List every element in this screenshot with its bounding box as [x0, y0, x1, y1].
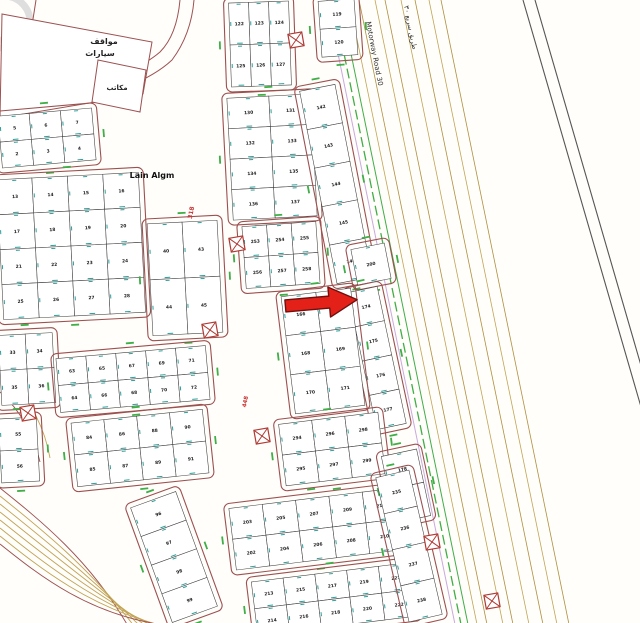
plot-number: 298 [358, 427, 368, 434]
plot-number: 88 [151, 428, 158, 435]
dimension-mark [0, 433, 1, 437]
dimension-mark [184, 248, 185, 252]
utility-box-icon [254, 428, 270, 444]
dimension-mark [0, 230, 1, 234]
dimension-mark [232, 64, 233, 68]
map-label: Lain Algm [130, 171, 175, 180]
dimension-mark [288, 96, 292, 97]
dimension-mark [105, 190, 106, 194]
dimension-mark [278, 44, 282, 45]
plot-number: 216 [299, 613, 309, 620]
dimension-mark [53, 283, 57, 284]
plot-number: 24 [122, 258, 128, 264]
dimension-mark [15, 419, 19, 420]
plot-number: 22 [51, 262, 57, 268]
plot-number: 166 [296, 311, 306, 318]
dimension-mark [37, 263, 38, 267]
dimension-mark [229, 111, 230, 115]
dimension-mark [69, 191, 70, 195]
dimension-mark [239, 85, 245, 86]
dimension-mark [163, 224, 167, 225]
plot-number: 297 [329, 461, 339, 468]
plot-number: 213 [264, 590, 274, 597]
plot-number: 36 [38, 383, 44, 389]
dimension-mark [291, 157, 295, 158]
dimension-mark [10, 336, 14, 337]
plot-number: 33 [9, 350, 15, 356]
plot-number: 7 [75, 120, 79, 126]
dimension-mark [87, 246, 91, 247]
dimension-mark [270, 109, 271, 113]
block-tl-big: 13141516171819202122232425262728 [0, 162, 157, 330]
map-label: سيارات [85, 49, 115, 58]
dimension-mark [246, 98, 250, 99]
plot-number: 136 [249, 201, 258, 207]
plot-number: 169 [336, 346, 346, 353]
plot-number: 256 [253, 269, 263, 276]
plot-number: 135 [289, 168, 298, 174]
dimension-mark [39, 369, 43, 370]
dimension-mark [233, 203, 234, 207]
dimension-mark [27, 349, 28, 353]
plot-number: 5 [13, 125, 17, 131]
plot-number: 15 [83, 190, 89, 196]
plot-number: 87 [122, 463, 129, 470]
dimension-mark [49, 213, 53, 214]
plot-number: 14 [47, 192, 53, 198]
plot-number: 63 [69, 368, 76, 375]
plot-number: 209 [343, 507, 353, 514]
plot-number: 89 [155, 459, 162, 466]
plot-number: 208 [346, 537, 356, 544]
plot-number: 127 [276, 62, 285, 68]
map-label: مواقف [90, 37, 118, 46]
dimension-mark [73, 261, 74, 265]
dimension-mark [2, 386, 3, 390]
dimension-mark [29, 384, 30, 388]
plot-number: 137 [291, 199, 300, 205]
dimension-mark [230, 142, 231, 146]
plot-number: 84 [86, 435, 93, 442]
plot-number: 171 [340, 385, 350, 392]
plot-number: 86 [119, 431, 126, 438]
dimension-mark [48, 178, 52, 179]
plot-number: 35 [11, 385, 17, 391]
utility-box-icon [424, 534, 440, 550]
plot-map-screenshot: 5672341314151617181920212223242526272833… [0, 0, 640, 623]
plot-number: 4 [78, 146, 82, 152]
plot-number: 45 [201, 302, 207, 308]
dimension-mark [279, 83, 285, 84]
dimension-mark [259, 84, 265, 85]
plot-number: 40 [163, 248, 169, 254]
plot-number: 56 [17, 463, 23, 469]
plot-number: 207 [309, 511, 319, 518]
dimension-mark [18, 285, 22, 286]
dimension-mark [272, 63, 273, 67]
plot-number: 72 [191, 385, 198, 392]
plot-number: 66 [101, 392, 108, 399]
dimension-mark [83, 176, 87, 177]
dimension-mark [238, 46, 242, 47]
plot-number: 296 [325, 431, 335, 438]
plot-number: 44 [166, 304, 172, 310]
plot-number: 134 [247, 171, 256, 177]
plot-number: 20 [120, 223, 126, 229]
plot-number: 119 [332, 11, 342, 18]
plot-number: 26 [53, 297, 59, 303]
dimension-mark [272, 140, 273, 144]
dimension-mark [119, 174, 123, 175]
plot-number: 16 [118, 188, 124, 194]
dimension-mark [251, 189, 255, 190]
plot-number: 70 [161, 387, 168, 394]
plot-number: 2 [15, 151, 19, 157]
dimension-mark [16, 250, 20, 251]
dimension-mark [12, 180, 16, 181]
plot-number: 6 [44, 123, 48, 129]
dimension-mark [39, 298, 40, 302]
plot-number: 202 [246, 550, 256, 557]
dimension-mark [106, 225, 107, 229]
dimension-mark [250, 21, 251, 25]
plot-map-canvas: 5672341314151617181920212223242526272833… [0, 0, 640, 623]
dimension-mark [89, 281, 93, 282]
plot-number: 132 [246, 140, 255, 146]
plot-number: 13 [12, 194, 18, 200]
plot-number: 25 [17, 299, 23, 305]
plot-number: 43 [198, 247, 204, 253]
dimension-mark [274, 170, 275, 174]
dimension-mark [232, 172, 233, 176]
plot-number: 23 [86, 260, 92, 266]
street-center-dash [219, 41, 221, 49]
dimension-mark [17, 451, 21, 452]
dimension-mark [275, 201, 276, 205]
plot-number: 257 [277, 268, 287, 275]
dimension-mark [277, 41, 283, 42]
plot-number: 130 [244, 110, 253, 116]
dimension-mark [12, 371, 16, 372]
dimension-mark [85, 211, 89, 212]
dimension-mark [0, 351, 1, 355]
dimension-mark [247, 129, 251, 130]
plot-number: 55 [15, 431, 21, 437]
dimension-mark [75, 296, 76, 300]
dimension-mark [277, 2, 281, 3]
dimension-mark [289, 126, 293, 127]
plot-number: 295 [296, 466, 306, 473]
dimension-mark [198, 222, 202, 223]
dimension-mark [34, 193, 35, 197]
plot-number: 205 [276, 515, 286, 522]
plot-number: 64 [71, 395, 78, 402]
plot-number: 170 [306, 389, 316, 396]
plot-number: 217 [328, 583, 338, 590]
plot-number: 123 [255, 20, 264, 26]
dimension-mark [108, 260, 109, 264]
plot-number: 18 [49, 227, 55, 233]
plot-number: 125 [236, 63, 245, 69]
plot-number: 69 [158, 360, 165, 367]
plot-number: 258 [302, 266, 312, 273]
dimension-mark [4, 300, 5, 304]
plot-number: 120 [334, 39, 344, 46]
plot-number: 255 [300, 235, 310, 242]
plot-number: 206 [313, 541, 323, 548]
plot-number: 65 [99, 366, 106, 373]
plot-number: 91 [188, 456, 195, 463]
dimension-mark [120, 209, 124, 210]
plot-number: 34 [36, 348, 42, 354]
plot-number: 68 [131, 390, 138, 397]
utility-box-icon [229, 236, 245, 252]
plot-number: 126 [256, 62, 265, 68]
plot-number: 204 [280, 546, 290, 553]
dimension-mark [2, 465, 3, 469]
plot-number: 17 [14, 229, 20, 235]
plot-number: 168 [301, 350, 311, 357]
plot-number: 85 [89, 466, 96, 473]
dimension-mark [187, 304, 188, 308]
plot-number: 215 [296, 587, 306, 594]
map-label: مكاتب [106, 84, 127, 92]
plot-number: 122 [235, 21, 244, 27]
plot-number: 254 [275, 237, 285, 244]
plot-number: 253 [251, 239, 261, 246]
utility-box-icon [484, 593, 500, 609]
plot-number: 218 [331, 609, 341, 616]
dimension-mark [293, 187, 297, 188]
dimension-mark [201, 278, 205, 279]
plot-number: 28 [124, 293, 130, 299]
dimension-mark [110, 294, 111, 298]
dimension-mark [166, 280, 170, 281]
dimension-mark [249, 159, 253, 160]
dimension-mark [230, 22, 231, 26]
dimension-mark [237, 4, 241, 5]
plot-number: 131 [286, 108, 295, 114]
dimension-mark [257, 42, 263, 43]
utility-box-icon [20, 405, 36, 421]
plot-number: 3 [46, 148, 50, 154]
dimension-mark [2, 265, 3, 269]
dimension-mark [51, 248, 55, 249]
dimension-mark [36, 228, 37, 232]
dimension-mark [124, 279, 128, 280]
plot-number: 124 [275, 20, 284, 26]
utility-box-icon [288, 32, 304, 48]
dimension-mark [71, 226, 72, 230]
plot-number: 294 [292, 435, 302, 442]
plot-number: 90 [184, 424, 191, 431]
dimension-mark [237, 43, 243, 44]
dimension-mark [37, 334, 41, 335]
plot-number: 299 [362, 457, 372, 464]
dimension-mark [258, 45, 262, 46]
dimension-mark [122, 244, 126, 245]
plot-number: 27 [88, 295, 94, 301]
plot-number: 219 [359, 579, 369, 586]
utility-box-icon [202, 322, 218, 338]
plot-number: 220 [363, 606, 373, 613]
plot-number: 21 [16, 264, 22, 270]
plot-number: 19 [85, 225, 91, 231]
dimension-mark [252, 63, 253, 67]
plot-number: 203 [243, 519, 253, 526]
dimension-mark [257, 3, 261, 4]
plot-number: 133 [287, 138, 296, 144]
dimension-mark [14, 215, 18, 216]
plot-number: 71 [188, 358, 195, 365]
dimension-mark [270, 21, 271, 25]
street-center-dash [258, 94, 266, 96]
dimension-mark [149, 250, 150, 254]
plot-number: 67 [129, 363, 136, 370]
dimension-mark [152, 306, 153, 310]
